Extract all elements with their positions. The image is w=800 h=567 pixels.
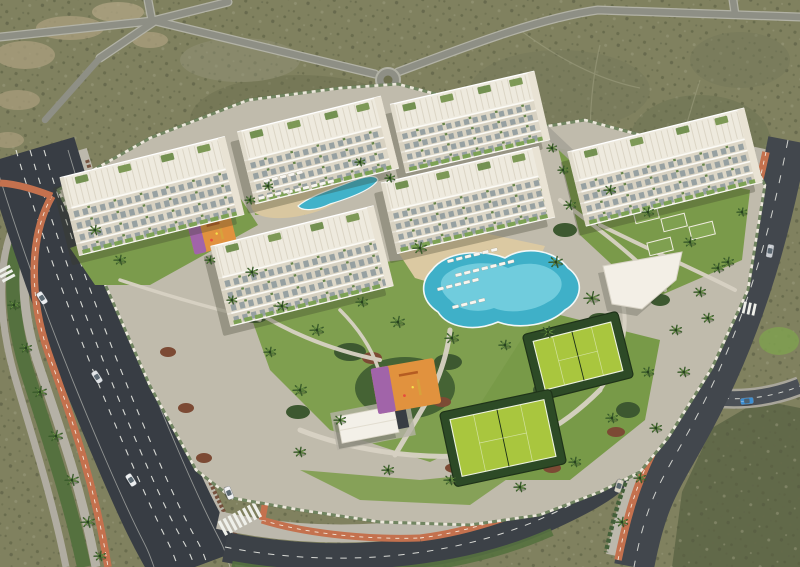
grass-pocket [759,327,799,355]
scene-svg [0,0,800,567]
aerial-render-image [0,0,800,567]
main-pool-shallow [441,263,562,311]
